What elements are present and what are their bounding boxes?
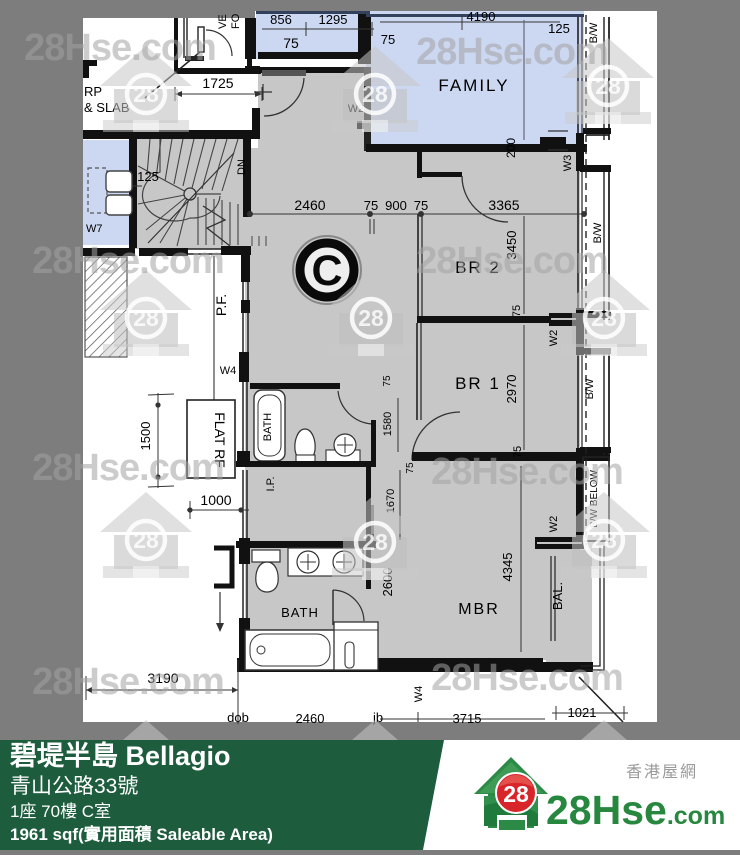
svg-text:BATH: BATH: [281, 605, 319, 620]
svg-text:BATH: BATH: [262, 413, 274, 442]
svg-text:2460: 2460: [296, 711, 325, 726]
svg-text:香港屋網: 香港屋網: [626, 763, 698, 781]
svg-text:1021: 1021: [568, 705, 597, 720]
svg-text:3365: 3365: [488, 197, 519, 213]
svg-text:75: 75: [381, 32, 395, 47]
svg-text:VE: VE: [217, 14, 229, 29]
svg-text:28Hse.com: 28Hse.com: [24, 27, 216, 69]
svg-text:200: 200: [504, 138, 518, 158]
svg-text:FO: FO: [230, 13, 242, 29]
svg-text:青山公路33號: 青山公路33號: [10, 775, 138, 798]
svg-text:4190: 4190: [467, 9, 496, 24]
svg-text:1295: 1295: [319, 12, 348, 27]
svg-text:75: 75: [283, 35, 299, 51]
svg-text:28Hse.com: 28Hse.com: [431, 657, 623, 699]
svg-text:856: 856: [270, 12, 292, 27]
svg-text:28Hse.com: 28Hse.com: [416, 240, 608, 282]
svg-text:W7: W7: [86, 223, 103, 235]
svg-text:W4: W4: [413, 686, 425, 703]
svg-text:DN: DN: [236, 159, 248, 175]
svg-text:1725: 1725: [202, 75, 233, 91]
svg-text:I.P.: I.P.: [265, 476, 277, 491]
svg-text:28Hse.com: 28Hse.com: [431, 451, 623, 493]
svg-text:BR 1: BR 1: [455, 374, 501, 393]
svg-text:75: 75: [511, 305, 523, 317]
svg-text:28: 28: [503, 781, 529, 807]
svg-text:4345: 4345: [500, 553, 515, 582]
svg-text:2460: 2460: [294, 197, 325, 213]
svg-text:28Hse.com: 28Hse.com: [32, 661, 224, 703]
svg-text:3715: 3715: [453, 711, 482, 726]
svg-text:28Hse.com: 28Hse.com: [32, 240, 224, 282]
svg-text:BAL.: BAL.: [550, 582, 565, 610]
svg-text:C: C: [311, 247, 342, 295]
svg-text:B/W: B/W: [584, 378, 596, 399]
svg-text:W3: W3: [562, 155, 574, 172]
svg-text:2970: 2970: [504, 375, 519, 404]
svg-text:1961 sqf(實用面積 Saleable Area): 1961 sqf(實用面積 Saleable Area): [10, 824, 273, 844]
svg-text:RP: RP: [84, 84, 102, 99]
svg-text:W2: W2: [548, 330, 560, 347]
svg-text:1580: 1580: [382, 412, 394, 436]
svg-text:FAMILY: FAMILY: [438, 76, 509, 95]
svg-text:1000: 1000: [200, 492, 231, 508]
svg-text:28Hse.com: 28Hse.com: [416, 31, 608, 73]
svg-text:dob: dob: [227, 710, 249, 725]
svg-text:MBR: MBR: [458, 601, 500, 618]
svg-text:28Hse.com: 28Hse.com: [32, 447, 224, 489]
svg-text:W2: W2: [548, 516, 560, 533]
svg-text:75: 75: [382, 375, 393, 387]
svg-text:碧堤半島 Bellagio: 碧堤半島 Bellagio: [9, 741, 231, 771]
svg-text:75: 75: [405, 462, 416, 474]
svg-text:125: 125: [137, 169, 159, 184]
svg-text:1座 70樓 C室: 1座 70樓 C室: [10, 802, 111, 821]
svg-text:P.F.: P.F.: [213, 294, 229, 316]
svg-text:W4: W4: [220, 365, 237, 377]
svg-text:900: 900: [385, 198, 407, 213]
svg-text:75: 75: [414, 198, 428, 213]
svg-text:75: 75: [364, 198, 378, 213]
